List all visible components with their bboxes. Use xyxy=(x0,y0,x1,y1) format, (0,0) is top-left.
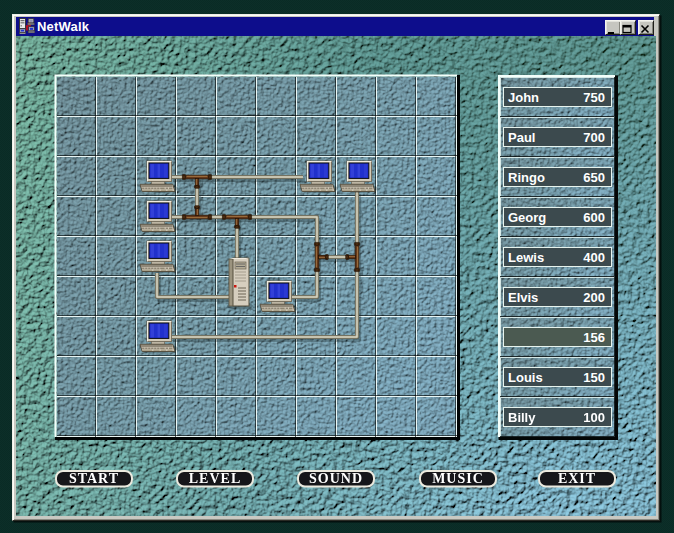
svg-text:650: 650 xyxy=(583,170,605,185)
svg-text:200: 200 xyxy=(583,290,605,305)
svg-text:Paul: Paul xyxy=(508,130,535,145)
svg-text:156: 156 xyxy=(583,330,605,345)
svg-text:SOUND: SOUND xyxy=(309,471,363,486)
svg-text:700: 700 xyxy=(583,130,605,145)
svg-text:LEVEL: LEVEL xyxy=(189,471,241,486)
svg-text:600: 600 xyxy=(583,210,605,225)
svg-text:MUSIC: MUSIC xyxy=(432,471,484,486)
svg-text:Billy: Billy xyxy=(508,410,536,425)
svg-text:START: START xyxy=(69,471,119,486)
svg-text:EXIT: EXIT xyxy=(558,471,596,486)
svg-text:Georg: Georg xyxy=(508,210,546,225)
svg-text:150: 150 xyxy=(583,370,605,385)
svg-text:John: John xyxy=(508,90,539,105)
svg-text:Elvis: Elvis xyxy=(508,290,538,305)
svg-text:Lewis: Lewis xyxy=(508,250,544,265)
svg-text:400: 400 xyxy=(583,250,605,265)
svg-text:750: 750 xyxy=(583,90,605,105)
svg-text:Ringo: Ringo xyxy=(508,170,545,185)
svg-text:Louis: Louis xyxy=(508,370,543,385)
svg-text:100: 100 xyxy=(583,410,605,425)
